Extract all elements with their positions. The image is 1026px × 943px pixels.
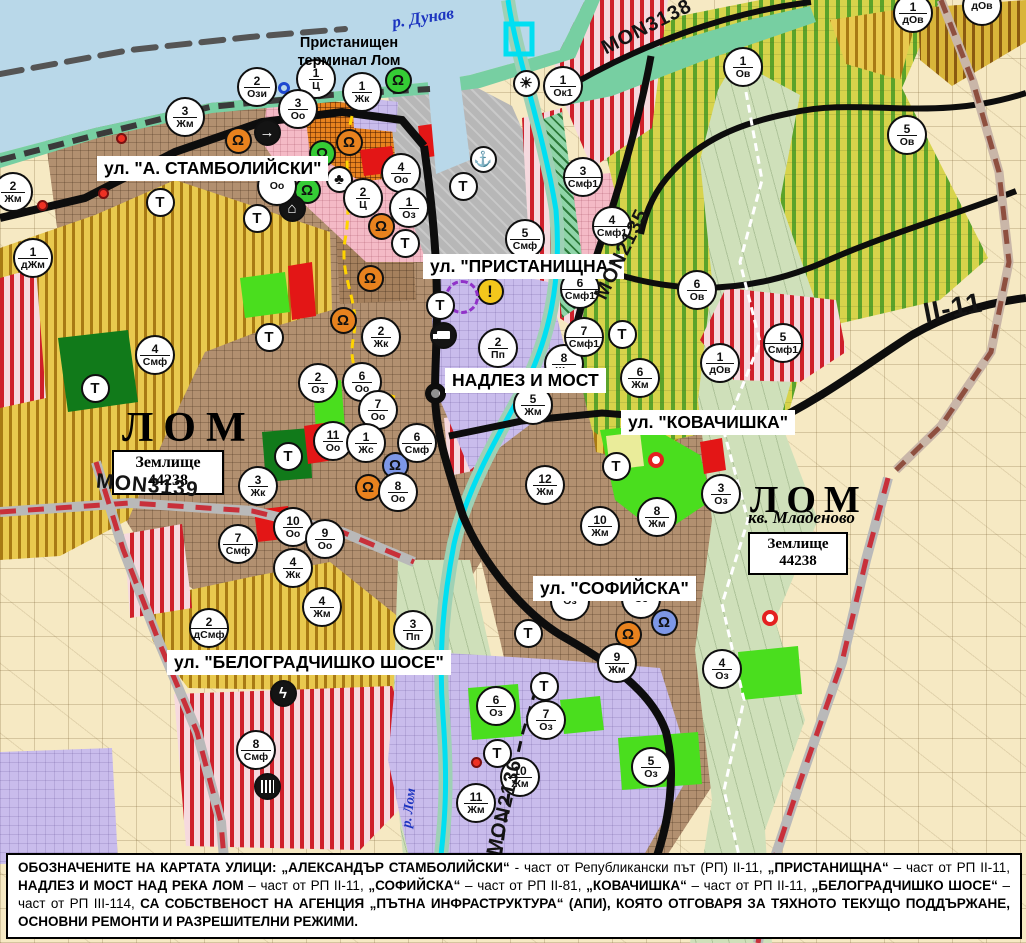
footer-note: ОБОЗНАЧЕНИТЕ НА КАРТАТА УЛИЦИ: „АЛЕКСАНД… [6,853,1022,939]
street-label-belogradchishko: ул. "БЕЛОГРАДЧИШКО ШОСЕ" [167,650,451,675]
map-labels-layer: р. Дунав р. Лом Пристанищен терминал Лом… [0,0,1026,943]
street-label-nadlez: НАДЛЕЗ И МОСТ [445,368,606,393]
district-label-mladenovo: кв. Младеново [748,508,855,528]
street-label-kovachishka: ул. "КОВАЧИШКА" [621,410,795,435]
landplot-number: 44238 [779,553,817,569]
road-label-ii-11: II-11 [896,282,1010,334]
street-label-pristanishtna: ул. "ПРИСТАНИЩНА" [423,254,624,279]
landplot-label: Землище [767,536,828,552]
urban-plan-map-lom: ΩΩΩΩΩΩΩΩΩΩΩΩ♣→⌂⚓☀!ϟ 2Ози1Ц3Оо1Жк3Жм2Жм1д… [0,0,1026,943]
port-terminal-label: Пристанищен терминал Лом [272,34,426,70]
landplot-box-right: Землище 44238 [748,532,848,575]
street-label-stamboliyski: ул. "А. СТАМБОЛИЙСКИ" [97,156,328,181]
landplot-label: Землище [135,454,200,471]
lom-river-label: р. Лом [399,787,420,828]
danube-river-label: р. Дунав [391,3,455,32]
footer-text: ОБОЗНАЧЕНИТЕ НА КАРТАТА УЛИЦИ: „АЛЕКСАНД… [18,860,1010,929]
road-label-mon2136: MON2136 [481,751,528,863]
road-label-mon3138: MON3138 [593,0,701,63]
town-name-lom-left: ЛОМ [122,404,256,452]
street-label-sofiyska: ул. "СОФИЙСКА" [533,576,696,601]
